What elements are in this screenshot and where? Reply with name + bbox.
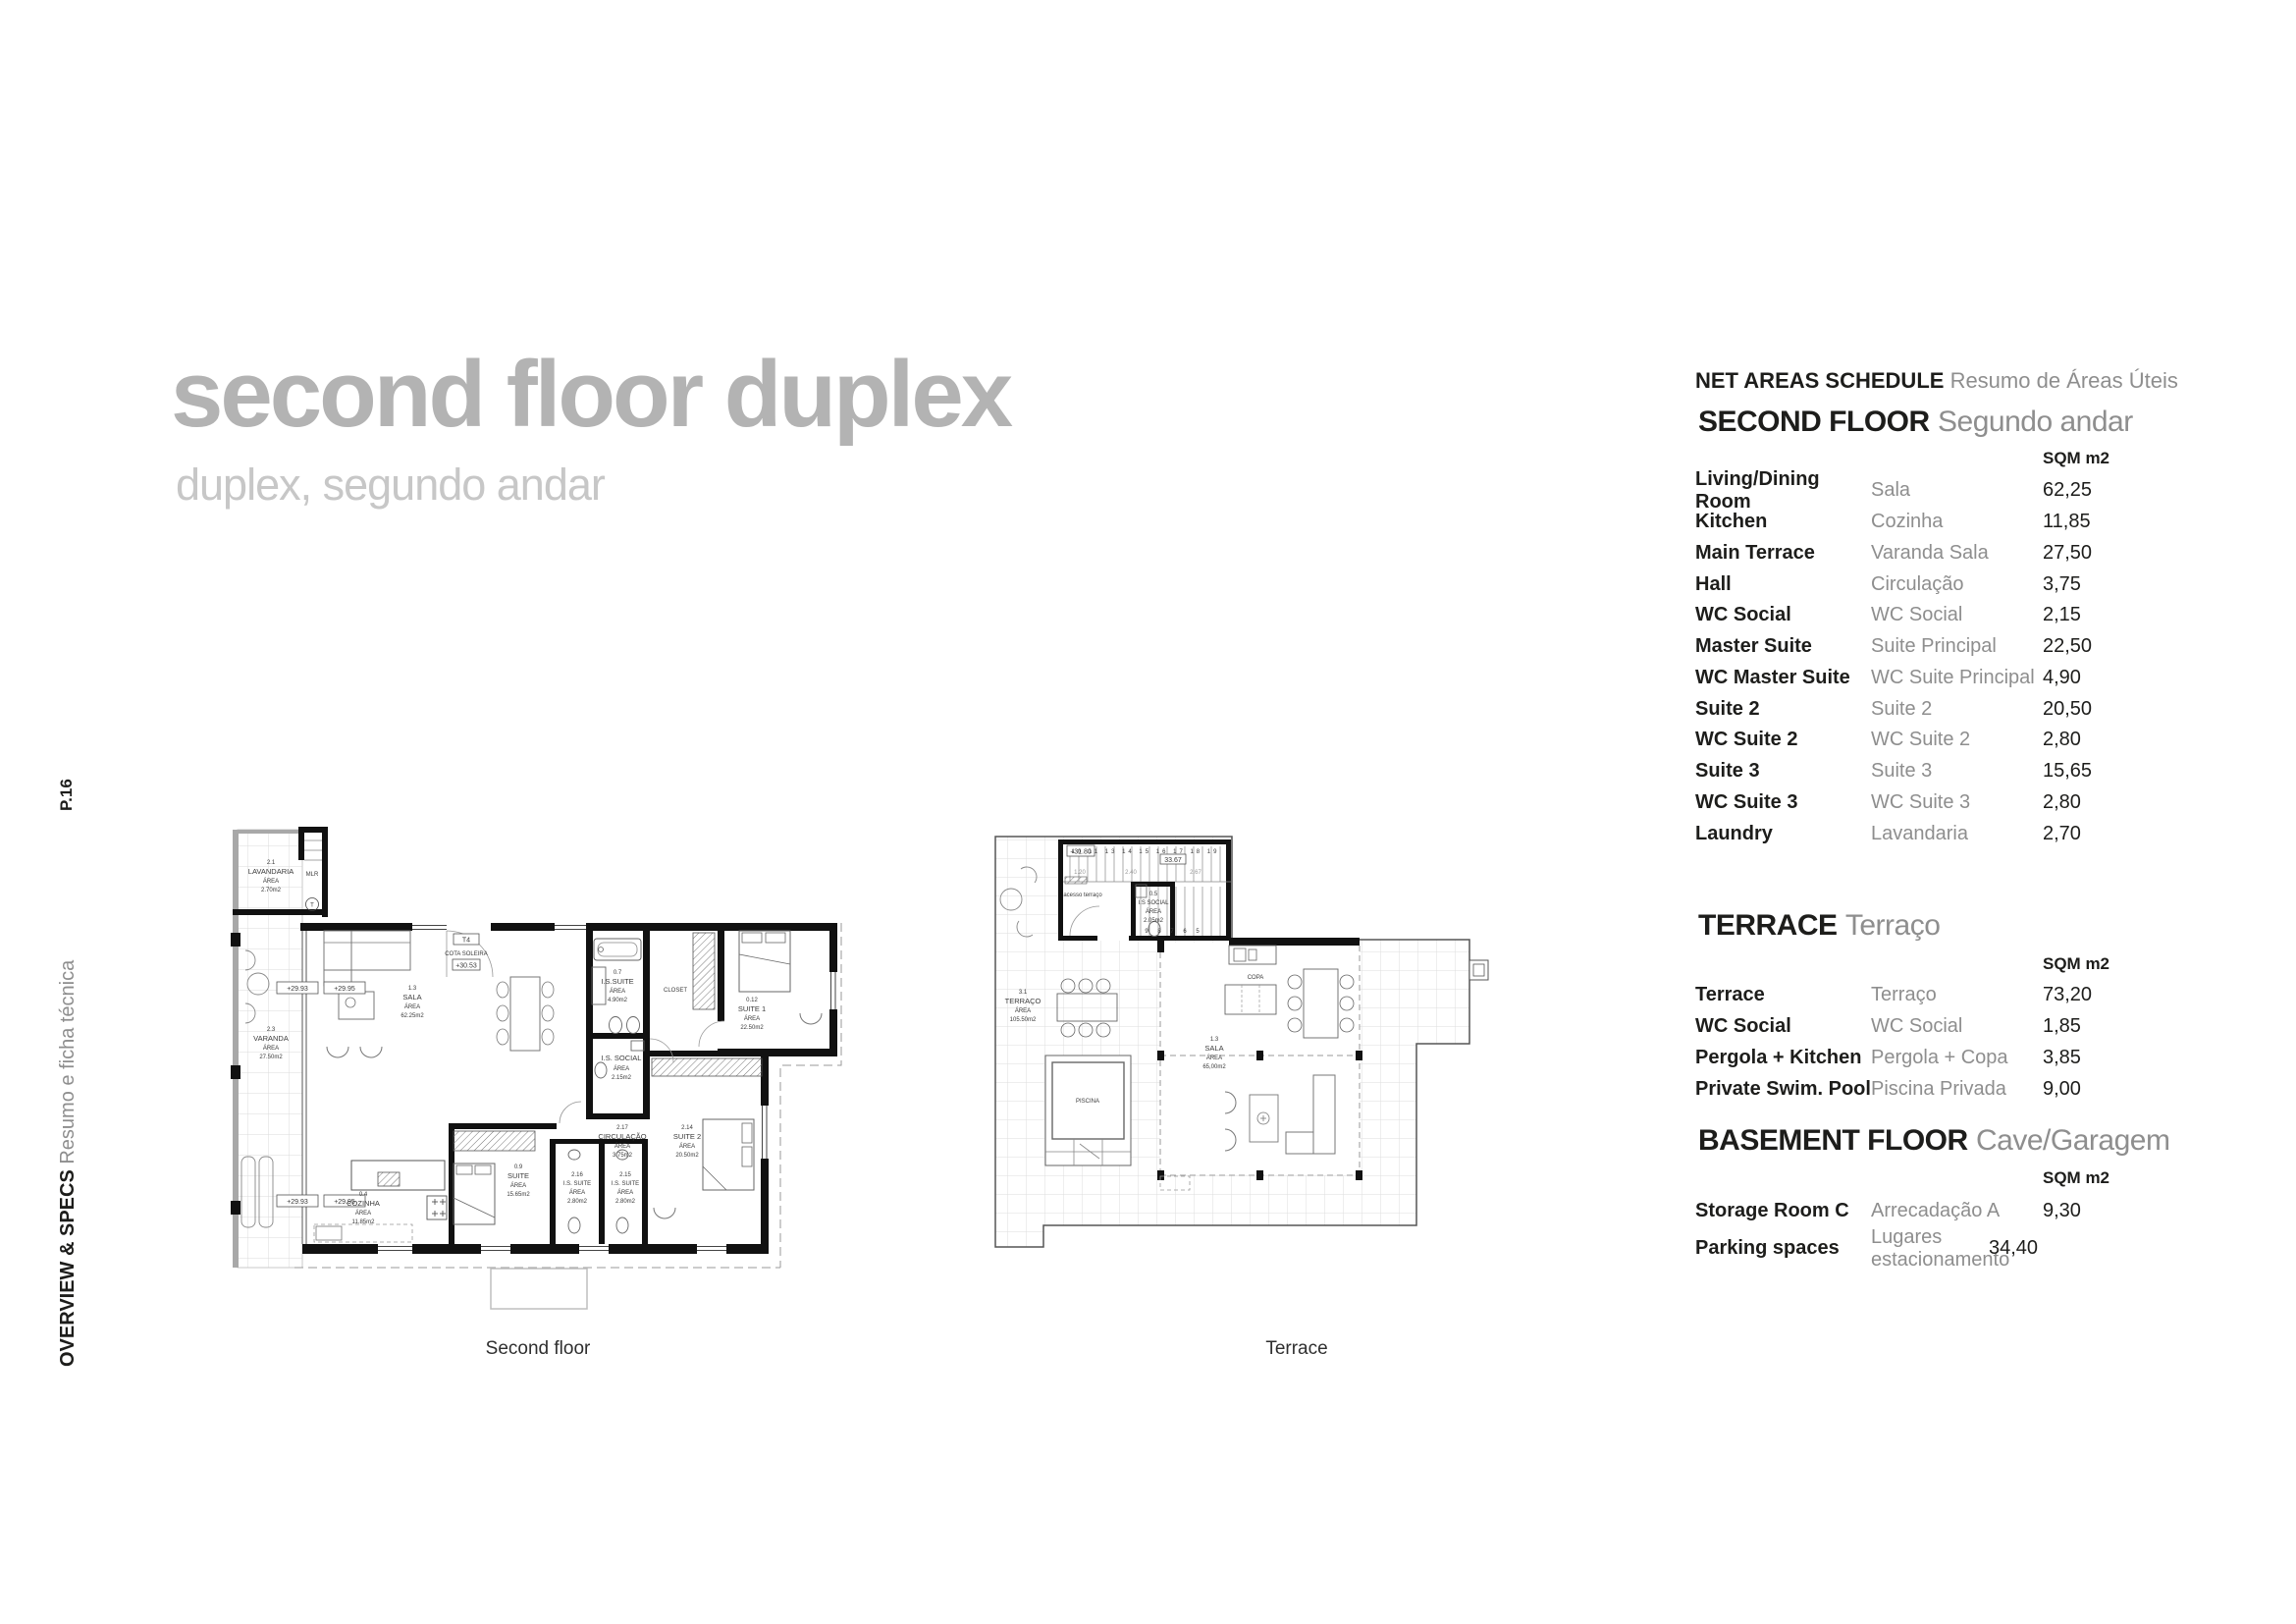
svg-text:2.05m2: 2.05m2: [1144, 918, 1164, 924]
table-row: LaundryLavandaria2,70: [1695, 818, 2117, 849]
svg-text:2.40: 2.40: [1125, 870, 1137, 876]
svg-text:2.67: 2.67: [1190, 870, 1201, 876]
svg-text:VARANDA: VARANDA: [253, 1034, 289, 1043]
svg-text:ÁREA: ÁREA: [569, 1189, 585, 1196]
svg-text:2.3: 2.3: [267, 1027, 276, 1033]
svg-text:ÁREA: ÁREA: [614, 1143, 630, 1150]
svg-text:9 8 7 6 5: 9 8 7 6 5: [1145, 929, 1202, 935]
table-row: WC Master SuiteWC Suite Principal4,90: [1695, 663, 2117, 694]
svg-text:SUITE: SUITE: [507, 1171, 529, 1180]
svg-text:SALA: SALA: [1204, 1044, 1223, 1053]
svg-text:ÁREA: ÁREA: [1206, 1055, 1222, 1061]
svg-text:22.50m2: 22.50m2: [740, 1025, 764, 1031]
svg-text:2.70m2: 2.70m2: [261, 888, 282, 893]
svg-text:62.25m2: 62.25m2: [400, 1013, 424, 1019]
svg-text:27.50m2: 27.50m2: [259, 1055, 283, 1060]
section-terrace-title: TERRACE Terraço: [1698, 909, 1940, 943]
svg-text:acesso terraço: acesso terraço: [1063, 893, 1102, 898]
svg-text:3.75m2: 3.75m2: [613, 1153, 633, 1159]
svg-text:TERRAÇO: TERRAÇO: [1005, 997, 1041, 1005]
svg-text:0.7: 0.7: [614, 970, 622, 976]
table-row: Living/Dining RoomSala62,25: [1695, 475, 2117, 507]
table-row: WC Suite 2WC Suite 22,80: [1695, 725, 2117, 756]
svg-text:+29.95: +29.95: [334, 986, 355, 993]
svg-text:1.3: 1.3: [408, 986, 417, 992]
table-row: Suite 3Suite 315,65: [1695, 756, 2117, 787]
svg-text:ÁREA: ÁREA: [744, 1015, 760, 1022]
section-basement-title: BASEMENT FLOOR Cave/Garagem: [1698, 1124, 2169, 1158]
svg-text:SUITE 1: SUITE 1: [738, 1004, 766, 1013]
plan-second-floor: +29.93 +29.95 +29.93 +29.95 T4 COTA SOLE…: [231, 827, 841, 1309]
page: second floor duplex duplex, segundo anda…: [0, 0, 2296, 1624]
table-row: Pergola + KitchenPergola + Copa3,85: [1695, 1043, 2117, 1074]
svg-text:I.S. SUITE: I.S. SUITE: [612, 1181, 639, 1187]
net-areas-header-en: NET AREAS SCHEDULE: [1695, 368, 1944, 393]
table-row: Suite 2Suite 220,50: [1695, 693, 2117, 725]
svg-text:15.65m2: 15.65m2: [507, 1192, 530, 1198]
svg-text:11.85m2: 11.85m2: [352, 1219, 376, 1225]
table-row: Parking spacesLugares estacionamento34,4…: [1695, 1227, 2117, 1271]
section-second-floor-title: SECOND FLOOR Segundo andar: [1698, 406, 2133, 439]
svg-text:2.80m2: 2.80m2: [567, 1199, 588, 1205]
svg-text:COPA: COPA: [1248, 975, 1264, 981]
svg-text:I.S SOCIAL: I.S SOCIAL: [1138, 900, 1169, 906]
svg-text:SALA: SALA: [402, 993, 421, 1001]
svg-text:ÁREA: ÁREA: [610, 988, 625, 995]
svg-text:ÁREA: ÁREA: [355, 1210, 371, 1217]
svg-text:I.S. SUITE: I.S. SUITE: [563, 1181, 591, 1187]
svg-text:0.5: 0.5: [1149, 892, 1158, 897]
sqm-header-terrace: SQM m2: [2043, 954, 2109, 974]
table-row: WC SocialWC Social1,85: [1695, 1011, 2117, 1043]
svg-text:4.90m2: 4.90m2: [608, 998, 628, 1003]
svg-text:T: T: [310, 903, 314, 909]
svg-text:+29.93: +29.93: [287, 1199, 308, 1206]
svg-text:10 11 13 14 15 16 17 18 19: 10 11 13 14 15 16 17 18 19: [1072, 849, 1220, 855]
svg-text:MLR: MLR: [306, 872, 319, 878]
svg-text:1.3: 1.3: [1210, 1037, 1219, 1043]
svg-text:COTA SOLEIRA: COTA SOLEIRA: [445, 951, 488, 957]
svg-text:LAVANDARIA: LAVANDARIA: [248, 867, 294, 876]
svg-text:COZINHA: COZINHA: [347, 1199, 380, 1208]
table-row: HallCirculação3,75: [1695, 568, 2117, 600]
svg-text:ÁREA: ÁREA: [617, 1189, 633, 1196]
table-row: TerraceTerraço73,20: [1695, 980, 2117, 1011]
svg-text:2.80m2: 2.80m2: [615, 1199, 636, 1205]
svg-text:PISCINA: PISCINA: [1076, 1099, 1099, 1105]
svg-text:105.50m2: 105.50m2: [1010, 1017, 1037, 1023]
svg-text:CIRCULAÇÃO: CIRCULAÇÃO: [598, 1132, 646, 1141]
svg-text:33.67: 33.67: [1164, 857, 1182, 864]
svg-text:ÁREA: ÁREA: [510, 1182, 526, 1189]
sqm-header-second-floor: SQM m2: [2043, 449, 2109, 468]
svg-text:ÁREA: ÁREA: [614, 1065, 629, 1072]
svg-text:2.17: 2.17: [616, 1125, 628, 1131]
terrace-table: TerraceTerraço73,20 WC SocialWC Social1,…: [1695, 980, 2117, 1105]
svg-text:CLOSET: CLOSET: [664, 988, 687, 994]
table-row: Master SuiteSuite Principal22,50: [1695, 631, 2117, 663]
svg-text:2.1: 2.1: [267, 860, 276, 866]
table-row: Private Swim. PoolPiscina Privada9,00: [1695, 1073, 2117, 1105]
svg-text:SUITE 2: SUITE 2: [673, 1132, 701, 1141]
table-row: KitchenCozinha11,85: [1695, 507, 2117, 538]
svg-text:2.16: 2.16: [571, 1172, 583, 1178]
table-row: Storage Room CArrecadação A9,30: [1695, 1196, 2117, 1227]
table-row: Main TerraceVaranda Sala27,50: [1695, 538, 2117, 569]
svg-text:0.4: 0.4: [359, 1192, 368, 1198]
svg-text:ÁREA: ÁREA: [263, 878, 279, 885]
basement-table: Storage Room CArrecadação A9,30 Parking …: [1695, 1196, 2117, 1271]
svg-text:T4: T4: [462, 938, 470, 945]
table-row: WC Suite 3WC Suite 32,80: [1695, 787, 2117, 819]
net-areas-header: NET AREAS SCHEDULE Resumo de Áreas Úteis: [1695, 368, 2178, 394]
svg-text:+29.93: +29.93: [287, 986, 308, 993]
svg-text:2.15: 2.15: [619, 1172, 631, 1178]
svg-text:+30.53: +30.53: [455, 963, 477, 970]
svg-text:ÁREA: ÁREA: [263, 1045, 279, 1052]
table-row: WC SocialWC Social2,15: [1695, 600, 2117, 631]
svg-text:ÁREA: ÁREA: [1015, 1007, 1031, 1014]
svg-text:I.S.SUITE: I.S.SUITE: [601, 977, 633, 986]
plan1-elevation-markers: +29.93 +29.95 +29.93 +29.95 T4 COTA SOLE…: [277, 934, 488, 1207]
svg-text:ÁREA: ÁREA: [679, 1143, 695, 1150]
svg-text:65,00m2: 65,00m2: [1202, 1064, 1226, 1070]
svg-text:2.15m2: 2.15m2: [612, 1075, 632, 1081]
plan-terrace: +31.80 33.67 10 11 13 14 15 16 17 18 19 …: [995, 837, 1488, 1247]
sqm-header-basement: SQM m2: [2043, 1168, 2109, 1188]
net-areas-header-pt: Resumo de Áreas Úteis: [1950, 368, 2178, 393]
svg-text:3.1: 3.1: [1019, 990, 1028, 996]
svg-text:2.14: 2.14: [681, 1125, 693, 1131]
svg-text:I.S. SOCIAL: I.S. SOCIAL: [602, 1054, 642, 1062]
plan1-caption: Second floor: [410, 1338, 666, 1360]
svg-text:1.20: 1.20: [1074, 870, 1086, 876]
svg-text:0.12: 0.12: [746, 998, 758, 1003]
svg-text:ÁREA: ÁREA: [404, 1003, 420, 1010]
svg-text:20.50m2: 20.50m2: [675, 1153, 699, 1159]
second-floor-table: Living/Dining RoomSala62,25 KitchenCozin…: [1695, 475, 2117, 849]
svg-text:ÁREA: ÁREA: [1146, 908, 1161, 915]
plan2-caption: Terrace: [1169, 1338, 1424, 1360]
svg-text:0.9: 0.9: [514, 1164, 523, 1170]
